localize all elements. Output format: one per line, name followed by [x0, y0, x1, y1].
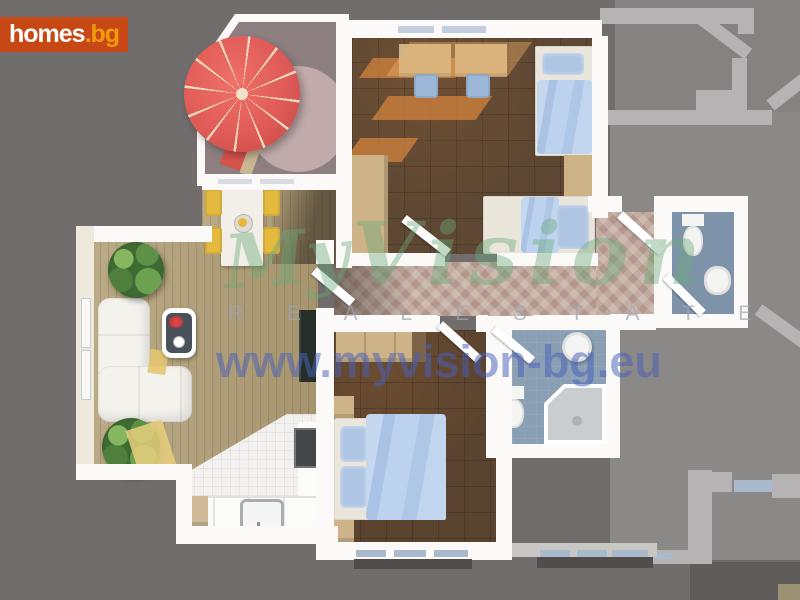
neighbor-wall-fragment	[778, 584, 800, 600]
desk-chair	[414, 74, 438, 98]
watermark-script-vision: Vision	[352, 212, 711, 298]
sunlight-patch	[386, 42, 532, 76]
neighbor-wall	[738, 8, 754, 34]
parasol	[184, 36, 300, 152]
dresser	[564, 155, 594, 200]
living-room-window	[81, 350, 91, 400]
flower-vase	[169, 316, 183, 328]
watermark-tagline: R E A L E S T A T E	[228, 302, 766, 326]
logo-text-main: homes	[9, 20, 85, 49]
sunlight-patch	[372, 96, 493, 120]
living-room-top-wall	[76, 226, 212, 242]
terrace-door-glass	[218, 179, 252, 184]
children-bedroom-right-wall	[592, 36, 608, 218]
bed-pillow	[542, 53, 584, 75]
neighbor-window	[577, 550, 607, 557]
master-window	[394, 550, 426, 557]
children-bedroom-window	[398, 26, 434, 33]
watermark-script-my: My	[222, 218, 352, 301]
master-window	[434, 550, 468, 557]
neighbor-wall	[732, 58, 747, 94]
neighbor-window-sill	[537, 557, 653, 568]
children-bedroom-window	[442, 26, 486, 33]
terrace-door-glass	[260, 179, 294, 184]
master-window	[356, 550, 386, 557]
potted-plant	[108, 242, 164, 298]
watermark-url: www.myvision-bg.eu	[216, 336, 662, 388]
neighbor-window	[734, 480, 772, 492]
neighbor-window	[612, 550, 648, 557]
homes-bg-logo: homes.bg	[0, 17, 128, 52]
neighbor-wall	[712, 472, 732, 492]
bed-pillow	[340, 426, 367, 462]
bed-blanket	[537, 80, 592, 154]
desk-chair	[466, 74, 490, 98]
neighbor-wall	[688, 470, 712, 564]
neighbor-wall	[696, 90, 747, 110]
corner-sofa-chaise	[98, 366, 192, 422]
neighbor-wall	[600, 8, 740, 24]
nightstand	[334, 396, 354, 418]
cup	[173, 336, 185, 348]
neighbor-wall	[604, 110, 772, 125]
bed-pillow	[340, 466, 367, 508]
bed-blanket	[366, 414, 446, 520]
living-room-bottom-wall	[76, 464, 192, 480]
logo-text-suffix: .bg	[85, 20, 120, 49]
floorplan-image: My Vision R E A L E S T A T E www.myvisi…	[0, 0, 800, 600]
master-window-sill	[354, 559, 472, 569]
dining-chair	[205, 189, 222, 216]
kitchen-bottom-wall	[176, 526, 338, 544]
dining-chair	[263, 189, 280, 216]
shower-drain	[572, 416, 582, 426]
neighbor-wall	[772, 474, 800, 498]
neighbor-window	[540, 550, 570, 557]
living-room-window	[81, 298, 91, 348]
